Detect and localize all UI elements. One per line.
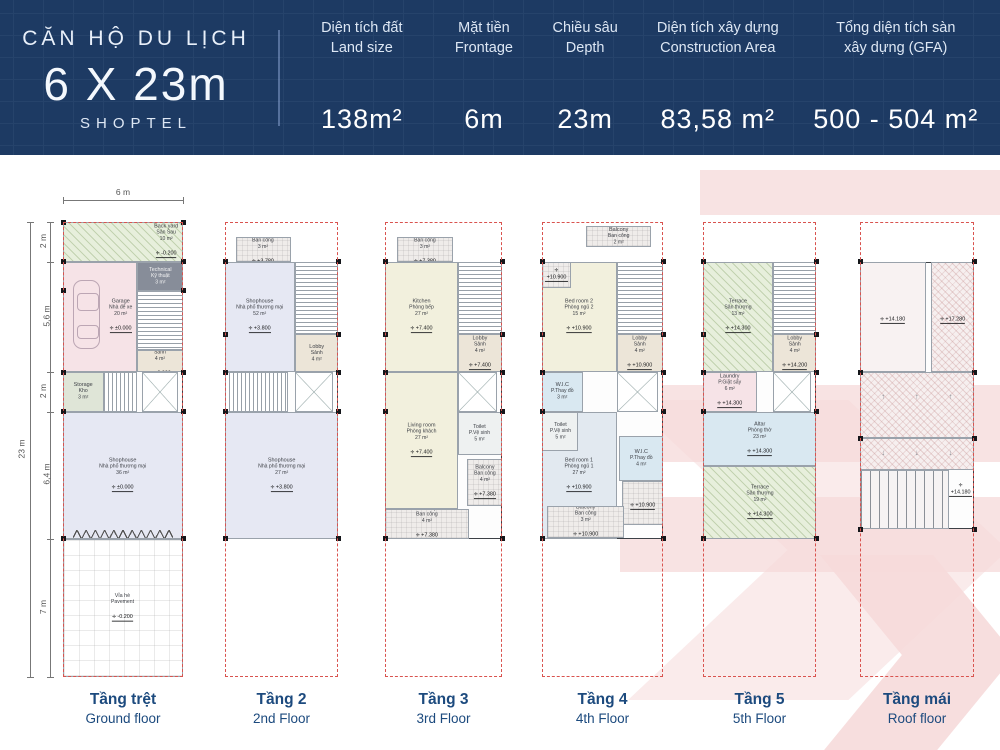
spec-label-vi: Mặt tiền: [458, 18, 510, 38]
title-block: CĂN HỘ DU LỊCH 6 X 23m SHOPTEL: [0, 23, 272, 132]
room-label-line: P.Vệ sinh: [469, 430, 490, 436]
slope-arrow-icon: ↑: [881, 392, 885, 401]
level-mark: +10.900: [567, 326, 592, 334]
room-label-line: Sân thượng: [746, 491, 773, 497]
room-shophouse-lower: ShophouseNhà phố thương mại27 m²+3.800: [225, 412, 338, 539]
floor-caption-4: Tầng 44th Floor: [533, 691, 673, 726]
room-label: KitchenPhòng bếp27 m²+7.400: [409, 299, 434, 336]
room-label-line: 27 m²: [258, 470, 305, 476]
level-mark: +14.300: [718, 401, 743, 409]
pier-column: [336, 409, 341, 414]
room-label: TechnicalKỹ thuật3 m²: [149, 266, 172, 286]
floor-caption-vi: Tầng mái: [847, 691, 987, 709]
room-label-line: Sảnh: [149, 350, 171, 356]
floor-2: BalconyBan công3 m²+3.780ShophouseNhà ph…: [225, 222, 338, 677]
pier-column: [61, 288, 66, 293]
room-label-line: 3 m²: [414, 244, 436, 250]
floor-caption-en: 3rd Floor: [374, 711, 514, 726]
room-roof-stair-top: +17.280: [931, 262, 974, 373]
pier-column: [858, 527, 863, 532]
watermark-band: [700, 170, 1000, 215]
floor-caption-vi: Tầng 3: [374, 691, 514, 709]
level-mark: +7.400: [410, 326, 432, 334]
level-mark: +14.300: [747, 448, 772, 456]
room-label-line: Nhà phố thương mại: [258, 464, 305, 470]
level-mark: +10.900: [630, 502, 655, 510]
room-label-line: 19 m²: [746, 497, 773, 503]
floor-caption-en: Ground floor: [53, 711, 193, 726]
spec-label-vi: Diện tích đất: [321, 18, 402, 38]
room-label: Bed room 1Phòng ngủ 127 m²+10.900: [565, 457, 594, 494]
room-label: LobbySảnh4 m²+10.900: [627, 335, 652, 372]
shoptel-floorplan-poster: CĂN HỘ DU LỊCH 6 X 23m SHOPTEL Diện tích…: [0, 0, 1000, 750]
spec-label-en: Land size: [331, 38, 393, 58]
level-mark: +10.900: [567, 484, 592, 492]
room-label-line: Toilet: [550, 422, 571, 429]
level-mark: +7.380: [416, 533, 438, 539]
room-label-line: Sảnh: [469, 342, 491, 348]
room-label-line: 4 m²: [630, 462, 653, 468]
pier-column: [181, 370, 186, 375]
room-label-line: Sảnh: [309, 350, 324, 356]
room-label: BalconyBan công3 m²+7.380: [414, 237, 436, 262]
pier-column: [661, 259, 666, 264]
room-backyard: Back yardSân Sau10 m²-0.200: [63, 222, 183, 262]
level-mark: +3.800: [249, 326, 271, 334]
room-label: AltarPhòng thờ23 m²+14.300: [747, 421, 772, 458]
slope-arrow-icon: ↑: [915, 392, 919, 401]
pier-column: [701, 332, 706, 337]
room-shophouse: ShophouseNhà phố thương mại36 m²±0.000: [63, 412, 183, 539]
room-label-line: Kỹ thuật: [149, 273, 172, 279]
pier-column: [500, 409, 505, 414]
room-label-line: P.Thay đồ: [630, 456, 653, 462]
room-label-line: 3 m²: [252, 244, 274, 250]
slope-arrow-icon: ↓: [948, 448, 952, 457]
room-label-line: Lobby: [782, 335, 807, 342]
floor-caption-vi: Tầng 5: [690, 691, 830, 709]
room-label-line: 4 m²: [627, 348, 652, 354]
pier-column: [814, 370, 819, 375]
pier-column: [701, 536, 706, 541]
room-label-line: Bed room 1: [565, 457, 594, 464]
room-label: +14.180: [949, 482, 972, 499]
pier-column: [540, 259, 545, 264]
pier-column: [383, 332, 388, 337]
room-label: ToiletP.Vệ sinh5 m²: [469, 423, 490, 443]
room-label-line: Phòng ngủ 2: [565, 305, 594, 311]
floor-roof: +14.180+17.280↑↑↑↓↓↓+14.180: [860, 222, 974, 677]
room-label-line: 6 m²: [718, 387, 743, 393]
spec-label-vi: Tổng diện tích sàn: [836, 18, 955, 38]
level-mark: -0.200: [113, 614, 134, 622]
spec-value: 500 - 504 m²: [813, 104, 978, 135]
folding-door-icon: [73, 530, 172, 539]
dim-tick: [27, 222, 34, 223]
dim-top-line: [63, 200, 183, 201]
room-balcony-side: BalconyBan công4 m²+7.380: [467, 459, 502, 507]
room-label: ToiletP.Vệ sinh5 m²: [550, 422, 571, 442]
room-label-line: 4 m²: [149, 356, 171, 362]
room-label-line: Shophouse: [99, 457, 146, 464]
room-label-line: Ban công: [416, 512, 438, 518]
room-pergola: [860, 470, 949, 529]
room-label-line: Nhà phố thương mại: [237, 305, 284, 311]
pier-column: [383, 409, 388, 414]
room-stair-mid: [225, 372, 288, 412]
pier-column: [383, 370, 388, 375]
level-mark: +17.280: [940, 316, 965, 324]
room-label: BalconyBan công3 m²+3.780: [252, 237, 274, 262]
pier-column: [814, 332, 819, 337]
floor-4: BalconyBan công2 m²Bed room 2Phòng ngủ 2…: [542, 222, 663, 677]
room-label: Living roomPhòng khách27 m²+7.400: [406, 422, 436, 459]
room-elevator: [295, 372, 333, 412]
room-stair-mid: [104, 372, 138, 412]
room-garage: GarageNhà để xe20 m²±0.000: [63, 262, 137, 373]
room-wic: W.I.CP.Thay đồ4 m²: [619, 436, 663, 482]
room-label-line: 5 m²: [550, 435, 571, 441]
room-label-line: Ban công: [473, 471, 495, 477]
pier-column: [61, 409, 66, 414]
spec-columns: Diện tích đấtLand size138m²Mặt tiềnFront…: [286, 0, 1000, 155]
room-balcony-front: BalconyBan công4 m²+7.380: [385, 509, 469, 539]
spec-depth: Chiều sâuDepth23m: [536, 18, 634, 143]
pier-column: [223, 536, 228, 541]
pier-column: [661, 536, 666, 541]
floor-caption-en: 5th Floor: [690, 711, 830, 726]
room-label: LobbySảnh4 m²+7.400: [469, 335, 491, 372]
room-label-line: 4 m²: [473, 477, 495, 483]
spec-value: 138m²: [321, 104, 403, 135]
room-label-line: 23 m²: [747, 434, 772, 440]
title-size: 6 X 23m: [0, 57, 272, 111]
level-mark: +3.800: [270, 484, 292, 492]
room-label: ShophouseNhà phố thương mại27 m²+3.800: [258, 457, 305, 494]
slope-arrow-icon: ↑: [948, 392, 952, 401]
dim-tick: [183, 197, 184, 204]
header: CĂN HỘ DU LỊCH 6 X 23m SHOPTEL Diện tích…: [0, 0, 1000, 155]
dim-tick: [47, 677, 54, 678]
spec-label-en: Frontage: [455, 38, 513, 58]
room-label-line: 3 m²: [74, 395, 93, 401]
room-label-line: Toilet: [469, 423, 490, 430]
dim-tick: [47, 222, 54, 223]
room-label: W.I.CP.Thay đồ3 m²: [551, 382, 574, 402]
pier-column: [814, 409, 819, 414]
dim-tick: [47, 539, 54, 540]
spec-value: 23m: [557, 104, 613, 135]
room-roof-deck-level: +14.180: [947, 477, 974, 504]
level-mark: +14.180: [949, 483, 972, 497]
room-label-line: 27 m²: [409, 312, 434, 318]
spec-label-en: Construction Area: [660, 38, 775, 58]
pier-column: [814, 259, 819, 264]
room-label-line: Sân thượng: [724, 305, 751, 311]
level-mark: +10.900: [573, 531, 598, 538]
pier-column: [540, 370, 545, 375]
room-label: +10.900: [630, 495, 655, 512]
spec-construction-area: Diện tích xây dựngConstruction Area83,58…: [634, 18, 802, 143]
room-stair-main: [617, 262, 663, 335]
spec-value: 6m: [464, 104, 504, 135]
pier-column: [223, 370, 228, 375]
room-stair-main: [458, 262, 502, 335]
pier-column: [540, 536, 545, 541]
pier-column: [500, 259, 505, 264]
room-label-line: 4 m²: [469, 348, 491, 354]
room-elevator: [617, 372, 658, 412]
room-balcony-front: BalconyBan công3 m²+10.900: [547, 506, 624, 538]
dim-tick: [27, 677, 34, 678]
dim-tick: [63, 197, 64, 204]
room-balcony-back: BalconyBan công3 m²+7.380: [397, 237, 453, 262]
floor-caption-5: Tầng 55th Floor: [690, 691, 830, 726]
room-kitchen: KitchenPhòng bếp27 m²+7.400: [385, 262, 458, 373]
pier-column: [661, 332, 666, 337]
spec-gfa: Tổng diện tích sànxây dựng (GFA)500 - 50…: [802, 18, 990, 143]
room-label-line: Sân Sau: [154, 230, 178, 236]
level-mark: +7.400: [410, 449, 432, 457]
pier-column: [61, 220, 66, 225]
room-label: LaundryP.Giặt sấy6 m²+14.300: [718, 374, 743, 411]
dim-seg-label: 2 m: [38, 384, 48, 398]
room-label: +14.180: [881, 308, 906, 325]
room-label: Bed room 2Phòng ngủ 215 m²+10.900: [565, 299, 594, 336]
room-label-line: 15 m²: [565, 312, 594, 318]
pier-column: [858, 436, 863, 441]
room-toilet: ToiletP.Vệ sinh5 m²: [458, 412, 502, 455]
pier-column: [181, 259, 186, 264]
level-mark: +14.300: [747, 511, 772, 519]
room-balcony-side: +10.900: [622, 481, 663, 525]
pier-column: [540, 332, 545, 337]
pier-column: [181, 288, 186, 293]
room-label-line: Balcony: [607, 226, 629, 233]
dim-overall-line: [30, 222, 31, 677]
pier-column: [500, 536, 505, 541]
dim-seg-line: [50, 222, 51, 677]
pier-column: [858, 259, 863, 264]
room-label-line: Ban công: [414, 238, 436, 244]
room-label-line: Ban công: [252, 238, 274, 244]
pier-column: [540, 409, 545, 414]
room-label-line: 4 m²: [416, 519, 438, 525]
room-label-line: Phòng ngủ 1: [565, 464, 594, 470]
pier-column: [336, 370, 341, 375]
pier-column: [858, 370, 863, 375]
room-technical: TechnicalKỹ thuật3 m²: [137, 262, 183, 291]
room-stair-main: [773, 262, 816, 335]
room-label-line: Shophouse: [258, 457, 305, 464]
room-label-line: Lobby: [309, 343, 324, 350]
spec-label-vi: Diện tích xây dựng: [657, 18, 779, 38]
room-label-line: Ban công: [573, 511, 598, 517]
pier-column: [61, 536, 66, 541]
room-elevator: [773, 372, 811, 412]
car-icon: [73, 280, 100, 349]
floor-ground: Back yardSân Sau10 m²-0.200GarageNhà để …: [63, 222, 183, 677]
room-lobby: LobbySảnh4 m²+14.200: [773, 334, 816, 372]
room-terrace-front: TerraceSân thượng19 m²+14.300: [703, 466, 816, 538]
room-lobby: LobbySảnh4 m²+10.900: [617, 334, 663, 372]
room-label-line: Living room: [406, 422, 436, 429]
room-label-line: Phòng khách: [406, 429, 436, 435]
floor-caption-vi: Tầng trệt: [53, 691, 193, 709]
room-lobby: LobbySảnh4 m²: [295, 334, 338, 372]
level-mark: +7.400: [469, 362, 491, 370]
dim-overall-label: 23 m: [16, 439, 26, 458]
room-label-line: 5 m²: [469, 437, 490, 443]
room-label: LobbySảnh4 m²: [309, 343, 324, 363]
room-label-line: 27 m²: [406, 435, 436, 441]
header-divider: [278, 30, 280, 126]
floor-caption-en: 2nd Floor: [212, 711, 352, 726]
room-living-room: Living roomPhòng khách27 m²+7.400: [385, 372, 458, 509]
room-terrace-back: TerraceSân thượng13 m²+14.300: [703, 262, 773, 373]
pier-column: [814, 536, 819, 541]
pier-column: [336, 332, 341, 337]
pier-column: [972, 370, 977, 375]
pier-column: [181, 409, 186, 414]
spec-label-vi: Chiều sâu: [553, 18, 618, 38]
floor-plans: 6 m23 m2 m5,6 m2 m6,4 m7 mBack yardSân S…: [0, 155, 1000, 750]
floor-3: BalconyBan công3 m²+7.380KitchenPhòng bế…: [385, 222, 502, 677]
floor-caption-en: Roof floor: [847, 711, 987, 726]
room-label: LobbySảnh4 m²+0.000: [149, 350, 171, 372]
floor-caption-3: Tầng 33rd Floor: [374, 691, 514, 726]
room-label-line: Phòng bếp: [409, 305, 434, 311]
room-stair-main: [295, 262, 338, 335]
dim-tick: [47, 262, 54, 263]
pier-column: [500, 332, 505, 337]
dim-top-label: 6 m: [63, 187, 183, 197]
room-label-line: Phòng thờ: [747, 428, 772, 434]
floor-caption-2: Tầng 22nd Floor: [212, 691, 352, 726]
room-label-line: 3 m²: [551, 395, 574, 401]
room-toilet: ToiletP.Vệ sinh5 m²: [542, 412, 578, 451]
room-shophouse-upper: ShophouseNhà phố thương mại52 m²+3.800: [225, 262, 295, 373]
pier-column: [223, 259, 228, 264]
room-label-line: Ban công: [607, 233, 629, 239]
room-label-line: 4 m²: [782, 348, 807, 354]
spec-label-en: Depth: [566, 38, 605, 58]
room-label: StorageKho3 m²: [74, 382, 93, 402]
pier-column: [181, 536, 186, 541]
dim-seg-label: 5,6 m: [42, 305, 52, 326]
floor-caption-ground: Tầng trệtGround floor: [53, 691, 193, 726]
room-altar: AltarPhòng thờ23 m²+14.300: [703, 412, 816, 467]
level-mark: -0.200: [155, 251, 176, 259]
room-label: BalconyBan công3 m²+10.900: [573, 506, 598, 538]
room-label-line: Sảnh: [782, 342, 807, 348]
room-label: GarageNhà để xe20 m²±0.000: [109, 299, 132, 336]
room-label: Vỉa hèPavement-0.200: [112, 593, 135, 623]
room-label-line: 36 m²: [99, 470, 146, 476]
room-lobby: LobbySảnh4 m²+0.000: [137, 350, 183, 372]
room-roof-slope-upper: ↑↑↑: [860, 372, 974, 438]
pier-column: [383, 536, 388, 541]
pier-column: [61, 259, 66, 264]
room-label: TerraceSân thượng19 m²+14.300: [746, 484, 773, 521]
floor-caption-en: 4th Floor: [533, 711, 673, 726]
room-balcony-back: +10.900: [542, 262, 571, 288]
room-label: +10.900: [545, 266, 568, 283]
pier-column: [972, 259, 977, 264]
pier-column: [701, 370, 706, 375]
room-balcony-top: BalconyBan công2 m²: [586, 226, 651, 247]
room-label: TerraceSân thượng13 m²+14.300: [724, 299, 751, 336]
room-elevator: [142, 372, 178, 412]
room-label: BalconyBan công4 m²+7.380: [473, 464, 495, 501]
pier-column: [181, 220, 186, 225]
pier-column: [661, 409, 666, 414]
room-roof-deck: +14.180: [860, 262, 926, 373]
room-label-line: Lobby: [627, 335, 652, 342]
room-label-line: 52 m²: [237, 312, 284, 318]
spec-label-en: xây dựng (GFA): [844, 38, 947, 58]
room-storage: StorageKho3 m²: [63, 372, 104, 412]
room-elevator: [458, 372, 498, 412]
room-label: ShophouseNhà phố thương mại52 m²+3.800: [237, 299, 284, 336]
pier-column: [223, 409, 228, 414]
room-label: +17.280: [940, 308, 965, 325]
pier-column: [336, 259, 341, 264]
room-label-line: 10 m²: [154, 237, 178, 243]
dim-seg-label: 7 m: [38, 600, 48, 614]
room-label-line: 3 m²: [573, 517, 598, 523]
room-label-line: Sảnh: [627, 342, 652, 348]
slope-arrow-icon: ↓: [881, 448, 885, 457]
room-pavement: Vỉa hèPavement-0.200: [63, 539, 183, 677]
room-label-line: Terrace: [746, 484, 773, 491]
room-label-line: 2 m²: [607, 239, 629, 245]
level-mark: +14.300: [726, 326, 751, 334]
room-label: BalconyBan công4 m²+7.380: [416, 509, 438, 539]
title-type: CĂN HỘ DU LỊCH: [0, 27, 272, 51]
pier-column: [701, 259, 706, 264]
room-label-line: Technical: [149, 266, 172, 273]
pier-column: [500, 370, 505, 375]
pier-column: [223, 332, 228, 337]
room-label: ShophouseNhà phố thương mại36 m²±0.000: [99, 457, 146, 494]
level-mark: +14.180: [881, 316, 906, 324]
room-label-line: Lobby: [469, 335, 491, 342]
room-label-line: P.Vệ sinh: [550, 428, 571, 434]
spec-frontage: Mặt tiềnFrontage6m: [432, 18, 537, 143]
room-label: LobbySảnh4 m²+14.200: [782, 335, 807, 372]
level-mark: +10.900: [627, 362, 652, 370]
room-label-line: 27 m²: [565, 470, 594, 476]
level-mark: +10.900: [545, 267, 568, 281]
level-mark: ±0.000: [112, 484, 134, 492]
floor-caption-roof: Tầng máiRoof floor: [847, 691, 987, 726]
room-wic-small: W.I.CP.Thay đồ3 m²: [542, 372, 583, 412]
title-subtitle: SHOPTEL: [0, 115, 272, 132]
floor-5: TerraceSân thượng13 m²+14.300LobbySảnh4 …: [703, 222, 816, 677]
pier-column: [661, 370, 666, 375]
dim-seg-label: 2 m: [38, 234, 48, 248]
floor-caption-vi: Tầng 4: [533, 691, 673, 709]
room-label: W.I.CP.Thay đồ4 m²: [630, 449, 653, 469]
room-roof-slope-lower: ↓↓↓: [860, 438, 974, 470]
floor-caption-vi: Tầng 2: [212, 691, 352, 709]
room-label-line: 13 m²: [724, 312, 751, 318]
spec-value: 83,58 m²: [660, 104, 775, 135]
level-mark: ±0.000: [110, 326, 132, 334]
room-label-line: Altar: [747, 421, 772, 428]
room-label: Back yardSân Sau10 m²-0.200: [154, 224, 178, 261]
